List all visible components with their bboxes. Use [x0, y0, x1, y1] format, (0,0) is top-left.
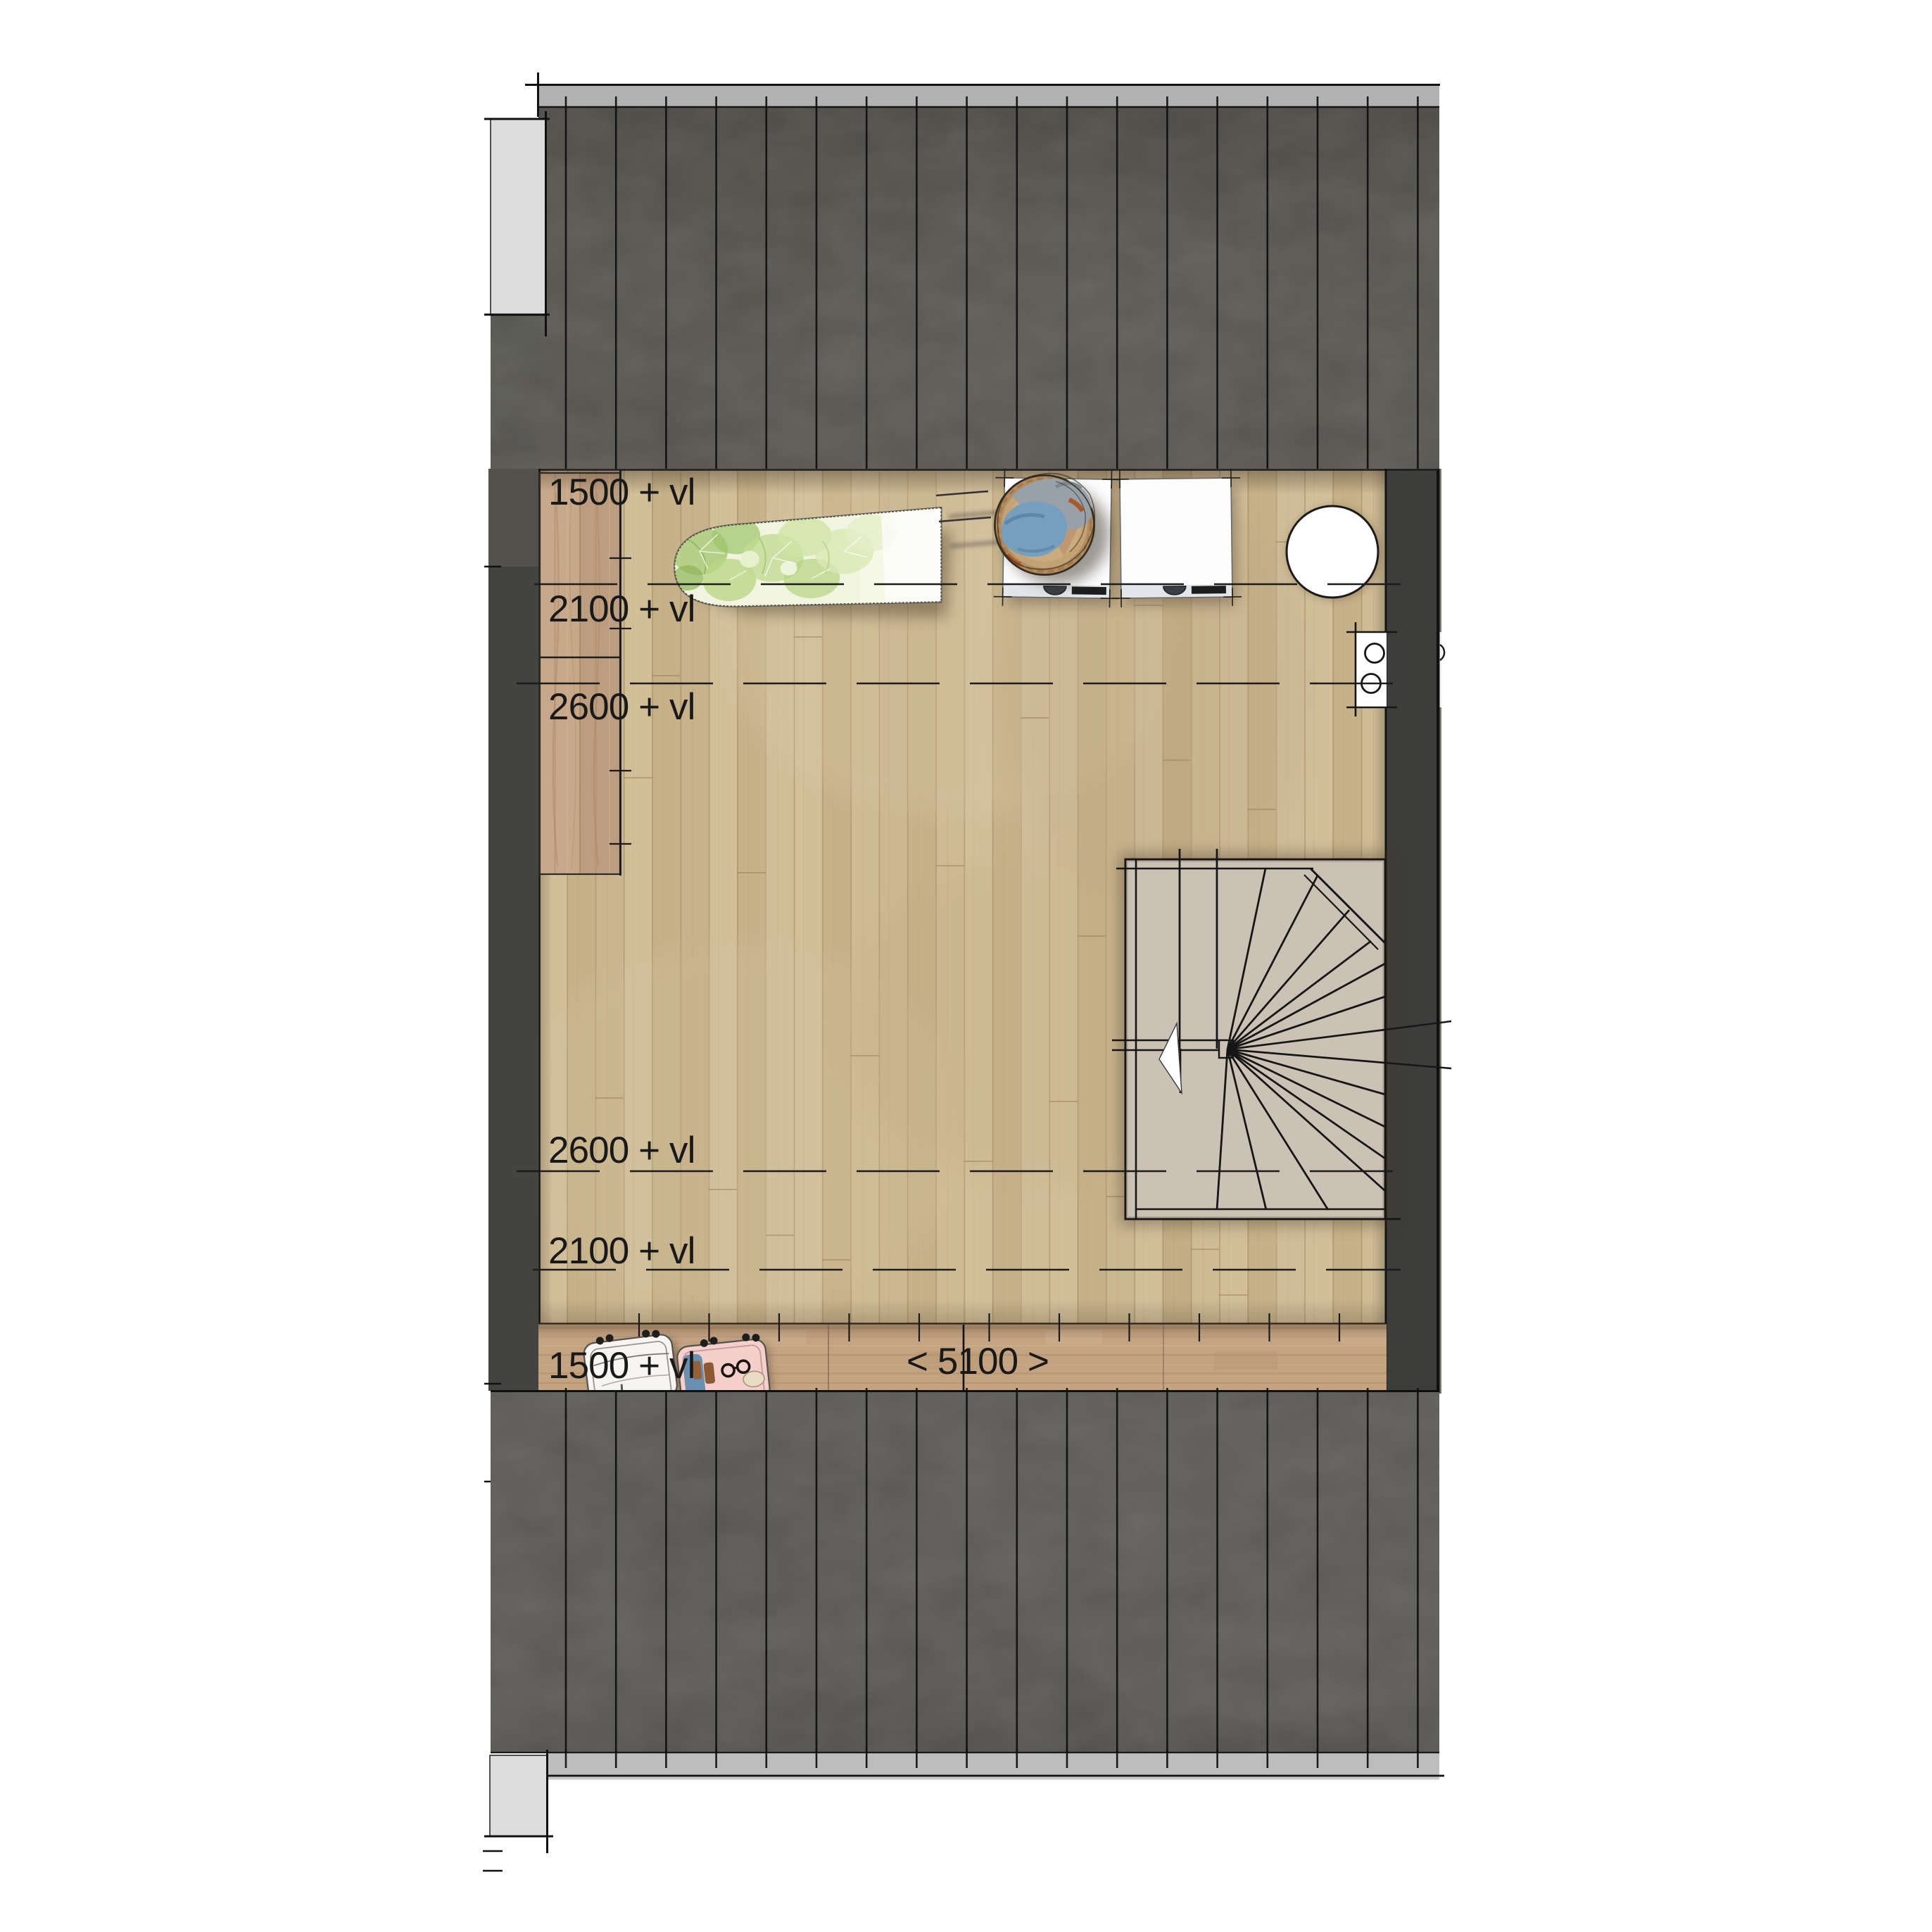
svg-text:2100 + vl: 2100 + vl: [548, 588, 695, 630]
svg-text:2600 + vl: 2600 + vl: [548, 1130, 695, 1171]
svg-text:1500 + vl: 1500 + vl: [548, 472, 695, 513]
svg-text:1500 + vl: 1500 + vl: [548, 1345, 695, 1387]
svg-text:< 5100 >: < 5100 >: [907, 1341, 1049, 1382]
svg-text:2100 + vl: 2100 + vl: [548, 1230, 695, 1272]
svg-text:2600 + vl: 2600 + vl: [548, 686, 695, 728]
